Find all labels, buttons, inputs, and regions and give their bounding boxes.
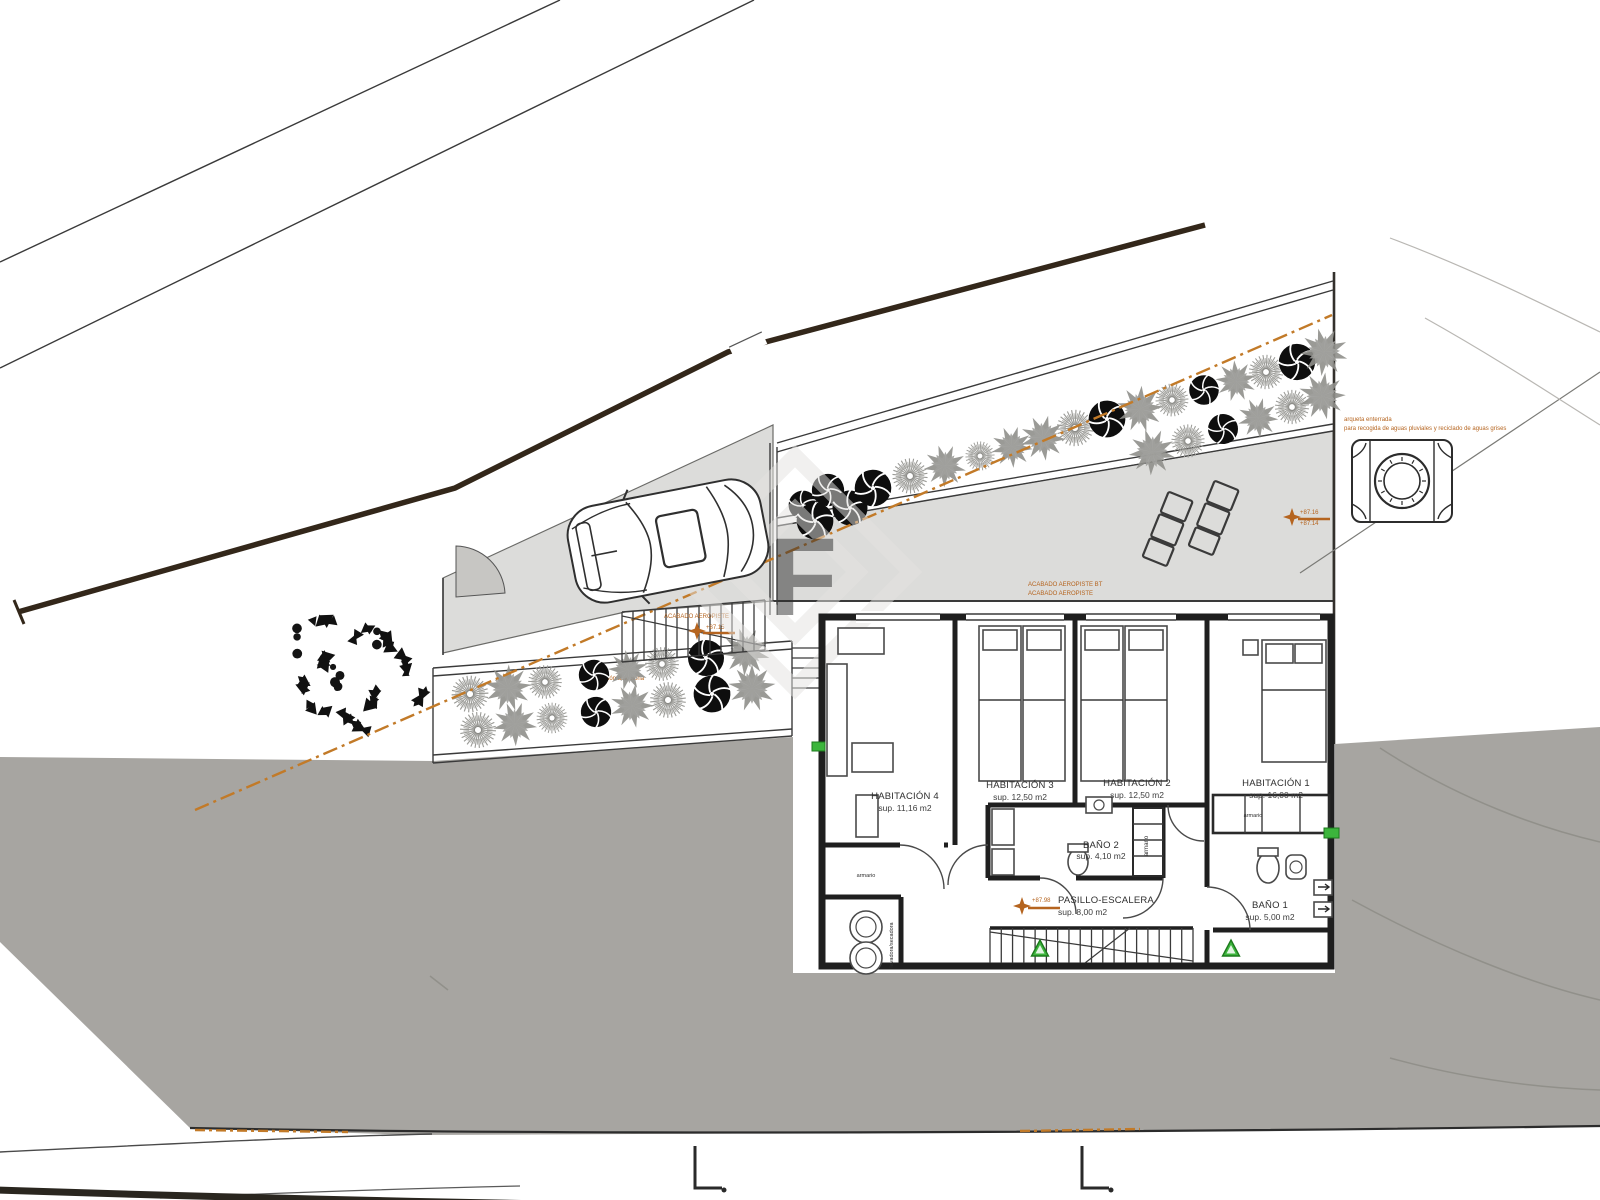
- plan-canvas: vegetación autóctona ACABADO AEROPISTE +…: [0, 0, 1600, 1200]
- dandelion-plant-icon: [639, 641, 685, 687]
- palm-plant-icon: [1210, 356, 1261, 407]
- terrace-finish-note-2: ACABADO AEROPISTE: [1028, 591, 1093, 597]
- bedroom2-furniture: [1081, 626, 1167, 781]
- dark-palm-tree-icon: [682, 634, 730, 681]
- laundry-machines: lavadora/secadora armario: [850, 873, 895, 974]
- dandelion-plant-icon: [643, 675, 693, 725]
- hall-elevation: +87.98: [1032, 898, 1051, 904]
- laundry-closet-label: armario: [857, 873, 876, 879]
- room-label-h4: HABITACIÓN 4: [871, 791, 939, 802]
- dark-palm-tree-icon: [572, 653, 615, 696]
- room-area-h3: sup. 12,50 m2: [993, 792, 1047, 802]
- bedroom3-furniture: [979, 626, 1065, 781]
- closet-bath-label: armario: [1244, 813, 1263, 819]
- terrace-finish-note-1: ACABADO AEROPISTE BT: [1028, 582, 1103, 588]
- bath2-fixtures: [992, 797, 1112, 875]
- room-label-bath1: BAÑO 1: [1252, 900, 1288, 911]
- section-markers: [695, 1146, 1114, 1193]
- contour-lines-topright: [1390, 238, 1600, 425]
- dark-palm-tree-icon: [1081, 393, 1133, 445]
- dandelion-plant-icon: [531, 697, 574, 740]
- room-area-h4: sup. 11,16 m2: [878, 803, 932, 813]
- cistern: [1300, 372, 1600, 573]
- gate-break: [729, 331, 768, 359]
- dandelion-plant-icon: [891, 457, 929, 495]
- room-area-bath2: sup. 4,10 m2: [1076, 851, 1125, 861]
- dandelion-plant-icon: [453, 705, 504, 756]
- room-label-bath2: BAÑO 2: [1083, 840, 1119, 851]
- interior-stairs: [990, 928, 1193, 963]
- terrace-elevation-1: +87.16: [1300, 510, 1319, 516]
- wall-vent-marker: [812, 742, 825, 751]
- dandelion-plant-icon: [963, 439, 997, 473]
- closet-hall: armario: [1133, 808, 1163, 876]
- tree-cluster: [292, 614, 430, 738]
- watermark-letter: F: [770, 516, 837, 639]
- terrain-shading: [0, 727, 1600, 1135]
- stair-arrow: [1223, 940, 1240, 956]
- closet-bath-row: armario: [1213, 795, 1329, 833]
- room-label-h1: HABITACIÓN 1: [1242, 778, 1310, 789]
- cistern-note-1: arqueta enterrada: [1344, 417, 1392, 423]
- dark-palm-tree-icon: [1202, 408, 1244, 450]
- windows: [856, 611, 1320, 623]
- room-area-bath1: sup. 5,00 m2: [1245, 912, 1294, 922]
- terrace-elevation-2: +87.14: [1300, 521, 1319, 527]
- dark-palm-tree-icon: [693, 674, 732, 713]
- room-area-h1: sup. 16,00 m2: [1249, 790, 1303, 800]
- room-area-h2: sup. 12,50 m2: [1110, 790, 1164, 800]
- room-label-h2: HABITACIÓN 2: [1103, 778, 1171, 789]
- dark-palm-tree-icon: [577, 693, 616, 731]
- cistern-note-2: para recogida de aguas pluviales y recic…: [1344, 426, 1506, 432]
- closet-hall-label: armario: [1144, 835, 1150, 856]
- floor-plan: armario armario: [812, 611, 1339, 974]
- room-area-hall: sup. 8,00 m2: [1058, 907, 1107, 917]
- laundry-label: lavadora/secadora: [889, 921, 895, 967]
- room-label-h3: HABITACIÓN 3: [986, 780, 1054, 791]
- contour-line: [0, 1134, 432, 1152]
- room-label-hall: PASILLO-ESCALERA: [1058, 895, 1154, 906]
- road-lines: [0, 0, 754, 368]
- wall-vent-marker: [1324, 828, 1339, 838]
- bedroom1-furniture: [1243, 640, 1326, 762]
- dandelion-plant-icon: [446, 670, 495, 719]
- site-plan-drawing: vegetación autóctona ACABADO AEROPISTE +…: [0, 0, 1600, 1200]
- dark-palm-tree-icon: [1278, 344, 1315, 381]
